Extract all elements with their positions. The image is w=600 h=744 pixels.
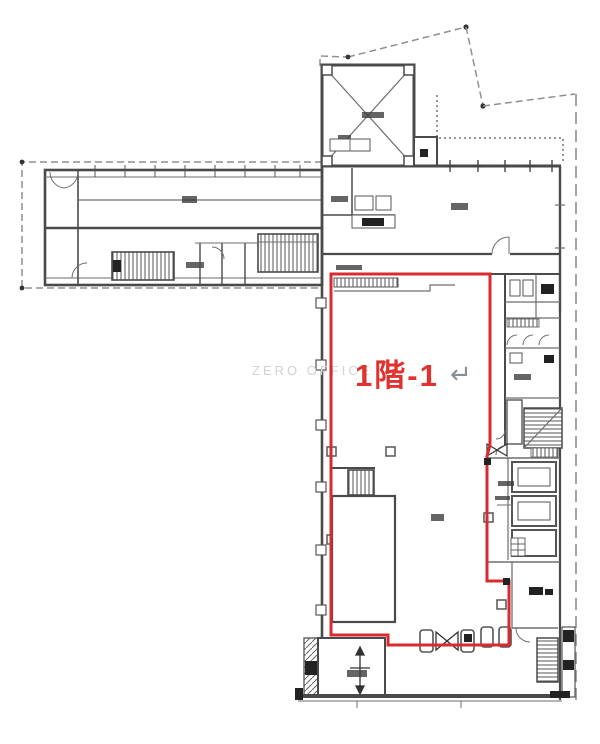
- tenant-stairs: [348, 470, 374, 495]
- reception-counter: [334, 278, 398, 287]
- loading-micro-label: [347, 670, 367, 677]
- machine-room-micro-label: [331, 196, 348, 202]
- small-shelf: [511, 538, 525, 556]
- shaft-fill: [420, 149, 428, 157]
- tenant-interior: [327, 265, 506, 622]
- stairs-west: [112, 252, 174, 280]
- room-micro-label: [186, 262, 204, 268]
- entrance-double-door: [436, 632, 458, 650]
- office-room-micro-label: [451, 203, 468, 210]
- floor-plan-page: ZERO OFFICE: [0, 0, 600, 744]
- wc-micro-label: [514, 374, 531, 380]
- elevator-shaft: [507, 400, 522, 444]
- room-micro-label: [431, 514, 444, 521]
- west-wall: [316, 274, 326, 697]
- dim-micro-label: [498, 481, 514, 486]
- door-arc: [516, 628, 530, 642]
- south-east-stairs: [537, 638, 558, 682]
- tenant-back-room: [332, 496, 395, 622]
- door-arc: [492, 237, 509, 254]
- entrance-door-leaf: [420, 630, 433, 652]
- south-entrance: [295, 627, 570, 708]
- corridor-micro-label: [182, 196, 197, 203]
- floor-plan-drawing: ZERO OFFICE: [0, 0, 600, 744]
- tower-micro-label: [362, 112, 384, 118]
- unit-label-group: 1階-1 ↵: [355, 358, 472, 393]
- toilet-stall-doors: [507, 335, 549, 345]
- column: [497, 600, 506, 609]
- return-symbol: ↵: [450, 359, 472, 389]
- column: [386, 447, 395, 456]
- dim-micro-label: [495, 496, 510, 500]
- left-wing-block: [45, 165, 322, 285]
- unit-label-text: 1階-1: [355, 358, 439, 393]
- reception-micro-label: [336, 265, 362, 270]
- stairs-center: [258, 234, 318, 272]
- stair-tower-block: [322, 65, 437, 166]
